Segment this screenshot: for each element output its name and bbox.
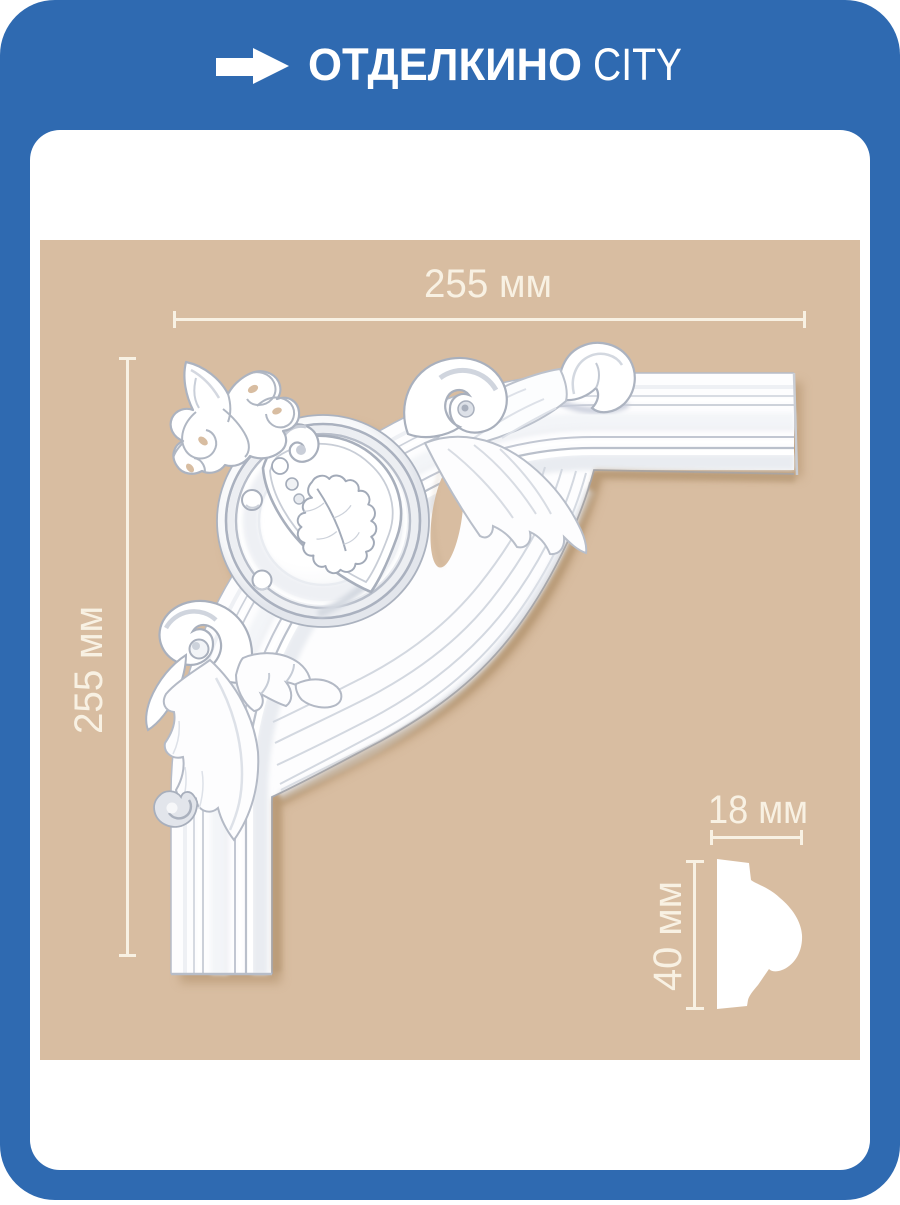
svg-text:ОТДЕЛКИНО: ОТДЕЛКИНО — [308, 39, 582, 90]
svg-text:40 мм: 40 мм — [646, 881, 690, 991]
svg-text:CITY: CITY — [593, 39, 682, 90]
svg-text:255 мм: 255 мм — [67, 606, 111, 734]
svg-text:255 мм: 255 мм — [424, 262, 552, 306]
svg-text:18 мм: 18 мм — [708, 788, 808, 832]
